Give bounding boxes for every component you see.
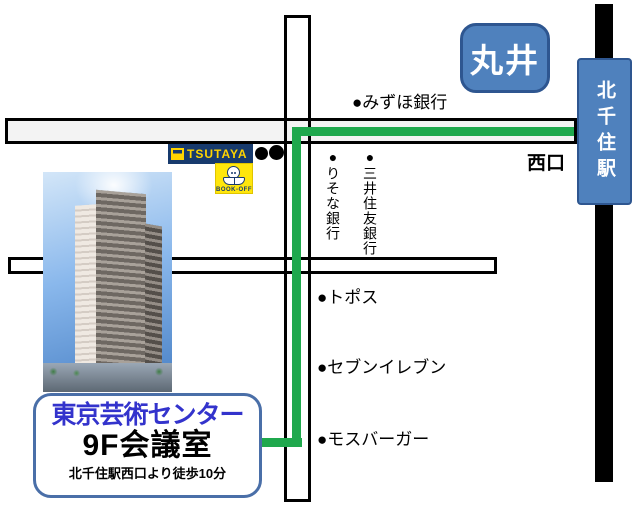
destination-room: 9F会議室 (36, 430, 259, 462)
poi-dot (269, 145, 284, 160)
walking-route-bottom-segment (262, 438, 302, 447)
building-ground (43, 363, 172, 392)
walking-route-vertical-segment (292, 127, 301, 447)
walking-route-top-segment (292, 127, 574, 136)
landmark-mizuho-bank: ●みずほ銀行 (352, 88, 447, 113)
landmark-topos: ●トポス (317, 283, 378, 308)
station-box: 北千住駅 (577, 58, 632, 205)
destination-info-box: 東京芸術センター 9F会議室 北千住駅西口より徒歩10分 (33, 393, 262, 498)
building-tower-left (75, 204, 96, 375)
bookoff-book-icon (223, 177, 245, 185)
station-name-label: 北千住駅 (591, 80, 618, 184)
landmark-mos-burger: ●モスバーガー (317, 425, 429, 450)
landmark-smbc-bank: ●三井住友銀行 (360, 149, 380, 256)
marui-store-box: 丸井 (460, 23, 550, 93)
poi-dot (255, 147, 268, 160)
bookoff-logo: BOOK-OFF (215, 163, 253, 194)
landmark-resona-bank: ●りそな銀行 (323, 149, 343, 241)
landmark-seven-eleven: ●セブンイレブン (317, 353, 446, 378)
west-exit-label: 西口 (527, 148, 565, 175)
building-tower-side (145, 223, 162, 376)
bookoff-logo-text: BOOK-OFF (216, 187, 252, 193)
tsutaya-logo: TSUTAYA (168, 144, 253, 164)
tsutaya-logo-text: TSUTAYA (187, 147, 248, 161)
building-tower-main (96, 190, 146, 377)
destination-name: 東京芸術センター (36, 402, 259, 430)
access-map: 北千住駅 西口 丸井 ●みずほ銀行 ●りそな銀行 ●三井住友銀行 ●トポス ●セ… (0, 0, 640, 513)
destination-access-note: 北千住駅西口より徒歩10分 (36, 463, 259, 482)
road-border-cross (282, 118, 313, 121)
tokyo-art-center-photo (43, 172, 172, 392)
tsutaya-icon (171, 148, 184, 160)
